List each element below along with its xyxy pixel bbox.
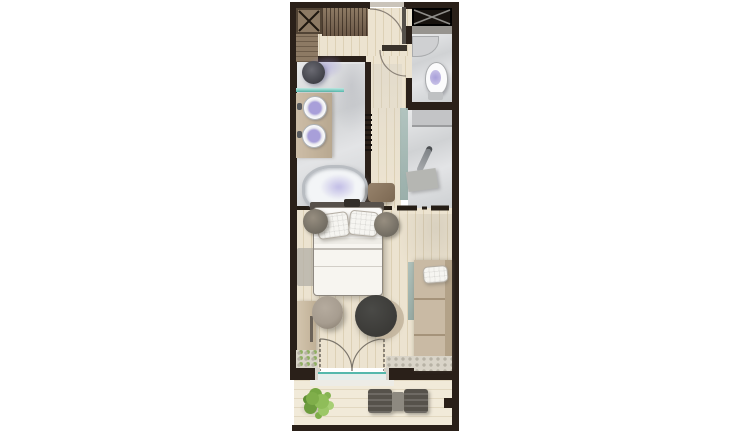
wall-wc-west-lower	[406, 78, 412, 104]
balcony-step	[310, 380, 394, 386]
bedside-stool-right	[374, 212, 399, 237]
bathtub-water	[320, 174, 354, 200]
console-handle	[310, 316, 313, 342]
balcony-corner-block	[444, 398, 454, 408]
towel-radiator	[365, 114, 372, 152]
wall-right	[452, 2, 459, 431]
shower-glass-screen	[296, 88, 344, 92]
planter-left	[296, 350, 318, 368]
closet-right-shelf	[412, 26, 452, 34]
bedside-stool-left	[303, 209, 328, 234]
washbasin-2	[302, 124, 326, 148]
balcony-railing	[292, 425, 459, 431]
partition-wall-fixture	[344, 199, 360, 207]
shower-bench	[406, 168, 438, 192]
entry-threshold	[370, 2, 404, 7]
hanging-rail	[322, 8, 368, 36]
daybed-pillow	[422, 265, 448, 284]
toilet-base	[428, 92, 443, 100]
faucet-2	[297, 131, 302, 138]
wall-wc-shower-divider	[406, 102, 452, 110]
round-coffee-table	[355, 295, 397, 337]
closet-right	[412, 8, 452, 26]
faucet-1	[297, 103, 302, 110]
balcony-side-table	[392, 392, 404, 411]
balcony-chair-left	[368, 389, 392, 413]
bath-stool	[368, 183, 395, 202]
wardrobe-cabinet	[296, 8, 322, 34]
planter-right	[386, 356, 452, 368]
toilet-bowl-water	[430, 70, 441, 85]
washbasin-1	[303, 96, 327, 120]
pouf	[312, 296, 343, 329]
wall-bottom-left	[290, 368, 318, 380]
rain-shower-head	[302, 61, 325, 84]
shower-ledge	[412, 110, 452, 127]
floor-plan	[0, 0, 754, 435]
balcony-chair-right	[404, 389, 428, 413]
potted-plant	[306, 392, 319, 405]
